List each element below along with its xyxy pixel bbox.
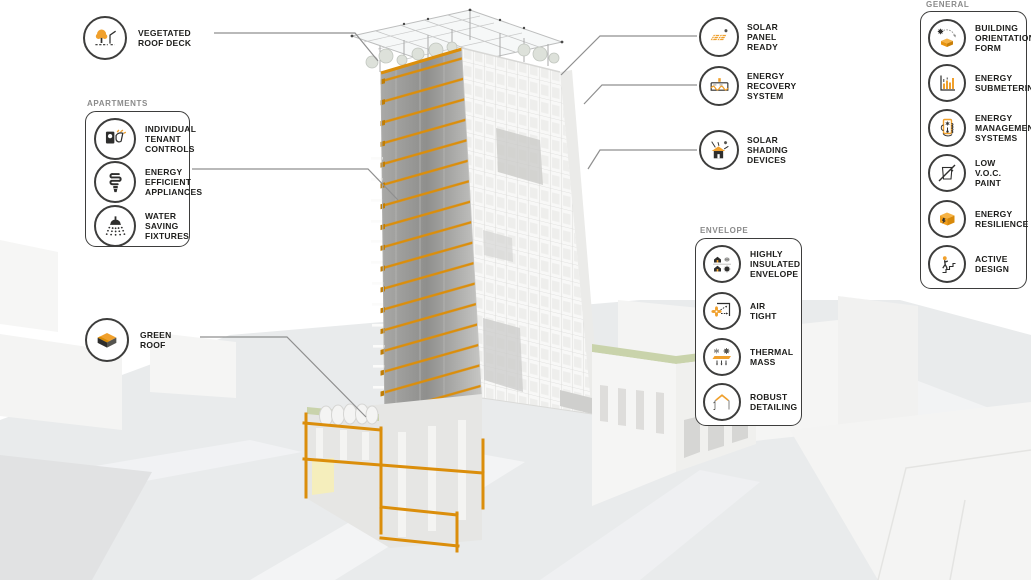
- building-illustration: [0, 0, 1031, 580]
- apartments-header: APARTMENTS: [87, 99, 148, 108]
- callout-label-insulated-envelope: HIGHLY INSULATED ENVELOPE: [750, 249, 808, 279]
- callout-air-tight: AIR TIGHT: [703, 292, 808, 330]
- low-voc-paint-icon: [928, 154, 966, 192]
- callout-label-building-orientation: BUILDING ORIENTATION/ FORM: [975, 23, 1031, 53]
- showerhead-icon: [94, 205, 136, 247]
- callout-low-voc-paint: LOW V.O.C. PAINT: [928, 154, 1031, 192]
- vegetated-roof-deck-icon: [83, 16, 127, 60]
- insulated-envelope-icon: [703, 245, 741, 283]
- thermal-mass-icon: [703, 338, 741, 376]
- callout-green-roof: GREEN ROOF: [85, 318, 202, 362]
- callout-label-thermal-mass: THERMAL MASS: [750, 347, 808, 367]
- solar-shading-icon: [699, 130, 739, 170]
- diagram-canvas: VEGETATED ROOF DECK APARTMENTS INDIVIDUA…: [0, 0, 1031, 580]
- apartments-box: INDIVIDUAL TENANT CONTROLS ENERGY EFFICI…: [85, 111, 190, 247]
- tower: [371, 48, 600, 428]
- envelope-header: ENVELOPE: [700, 226, 748, 235]
- building-orientation-icon: [928, 19, 966, 57]
- callout-label-solar-shading: SOLAR SHADING DEVICES: [747, 135, 797, 165]
- callout-label-active-design: ACTIVE DESIGN: [975, 254, 1031, 274]
- energy-resilience-icon: [928, 200, 966, 238]
- robust-detailing-icon: [703, 383, 741, 421]
- callout-label-green-roof: GREEN ROOF: [140, 330, 202, 350]
- general-header: GENERAL: [926, 0, 969, 9]
- callout-energy-submetering: ENERGY SUBMETERING: [928, 64, 1031, 102]
- energy-recovery-icon: [699, 66, 739, 106]
- callout-label-energy-resilience: ENERGY RESILIENCE: [975, 209, 1031, 229]
- solar-panel-icon: [699, 17, 739, 57]
- callout-label-solar-panel-ready: SOLAR PANEL READY: [747, 22, 797, 52]
- callout-label-water-saving: WATER SAVING FIXTURES: [145, 211, 202, 241]
- callout-label-low-voc-paint: LOW V.O.C. PAINT: [975, 158, 1031, 188]
- active-design-icon: [928, 245, 966, 283]
- callout-label-efficient-appliances: ENERGY EFFICIENT APPLIANCES: [145, 167, 202, 197]
- callout-building-orientation: BUILDING ORIENTATION/ FORM: [928, 19, 1031, 57]
- callout-solar-shading: SOLAR SHADING DEVICES: [699, 130, 797, 170]
- air-tight-icon: [703, 292, 741, 330]
- tenant-controls-icon: [94, 118, 136, 160]
- callout-vegetated-roof-deck: VEGETATED ROOF DECK: [83, 16, 200, 60]
- callout-energy-resilience: ENERGY RESILIENCE: [928, 200, 1031, 238]
- green-roof-icon: [85, 318, 129, 362]
- callout-solar-panel-ready: SOLAR PANEL READY: [699, 17, 797, 57]
- callout-label-energy-management: ENERGY MANAGEMENT SYSTEMS: [975, 113, 1031, 143]
- callout-thermal-mass: THERMAL MASS: [703, 338, 808, 376]
- callout-water-saving: WATER SAVING FIXTURES: [94, 205, 202, 247]
- general-box: BUILDING ORIENTATION/ FORM ENERGY SUBMET…: [920, 11, 1027, 289]
- callout-active-design: ACTIVE DESIGN: [928, 245, 1031, 283]
- callout-label-energy-submetering: ENERGY SUBMETERING: [975, 73, 1031, 93]
- callout-efficient-appliances: ENERGY EFFICIENT APPLIANCES: [94, 161, 202, 203]
- callout-label-energy-recovery: ENERGY RECOVERY SYSTEM: [747, 71, 797, 101]
- energy-management-icon: [928, 109, 966, 147]
- callout-label-vegetated-roof-deck: VEGETATED ROOF DECK: [138, 28, 200, 48]
- callout-energy-management: ENERGY MANAGEMENT SYSTEMS: [928, 109, 1031, 147]
- envelope-box: HIGHLY INSULATED ENVELOPE AIR TIGHT: [695, 238, 802, 426]
- callout-label-robust-detailing: ROBUST DETAILING: [750, 392, 808, 412]
- window-face: [462, 48, 600, 414]
- callout-insulated-envelope: HIGHLY INSULATED ENVELOPE: [703, 245, 808, 283]
- callout-label-air-tight: AIR TIGHT: [750, 301, 808, 321]
- callout-label-tenant-controls: INDIVIDUAL TENANT CONTROLS: [145, 124, 202, 154]
- energy-submetering-icon: [928, 64, 966, 102]
- callout-tenant-controls: INDIVIDUAL TENANT CONTROLS: [94, 118, 202, 160]
- callout-energy-recovery: ENERGY RECOVERY SYSTEM: [699, 66, 797, 106]
- cfl-bulb-icon: [94, 161, 136, 203]
- callout-robust-detailing: ROBUST DETAILING: [703, 383, 808, 421]
